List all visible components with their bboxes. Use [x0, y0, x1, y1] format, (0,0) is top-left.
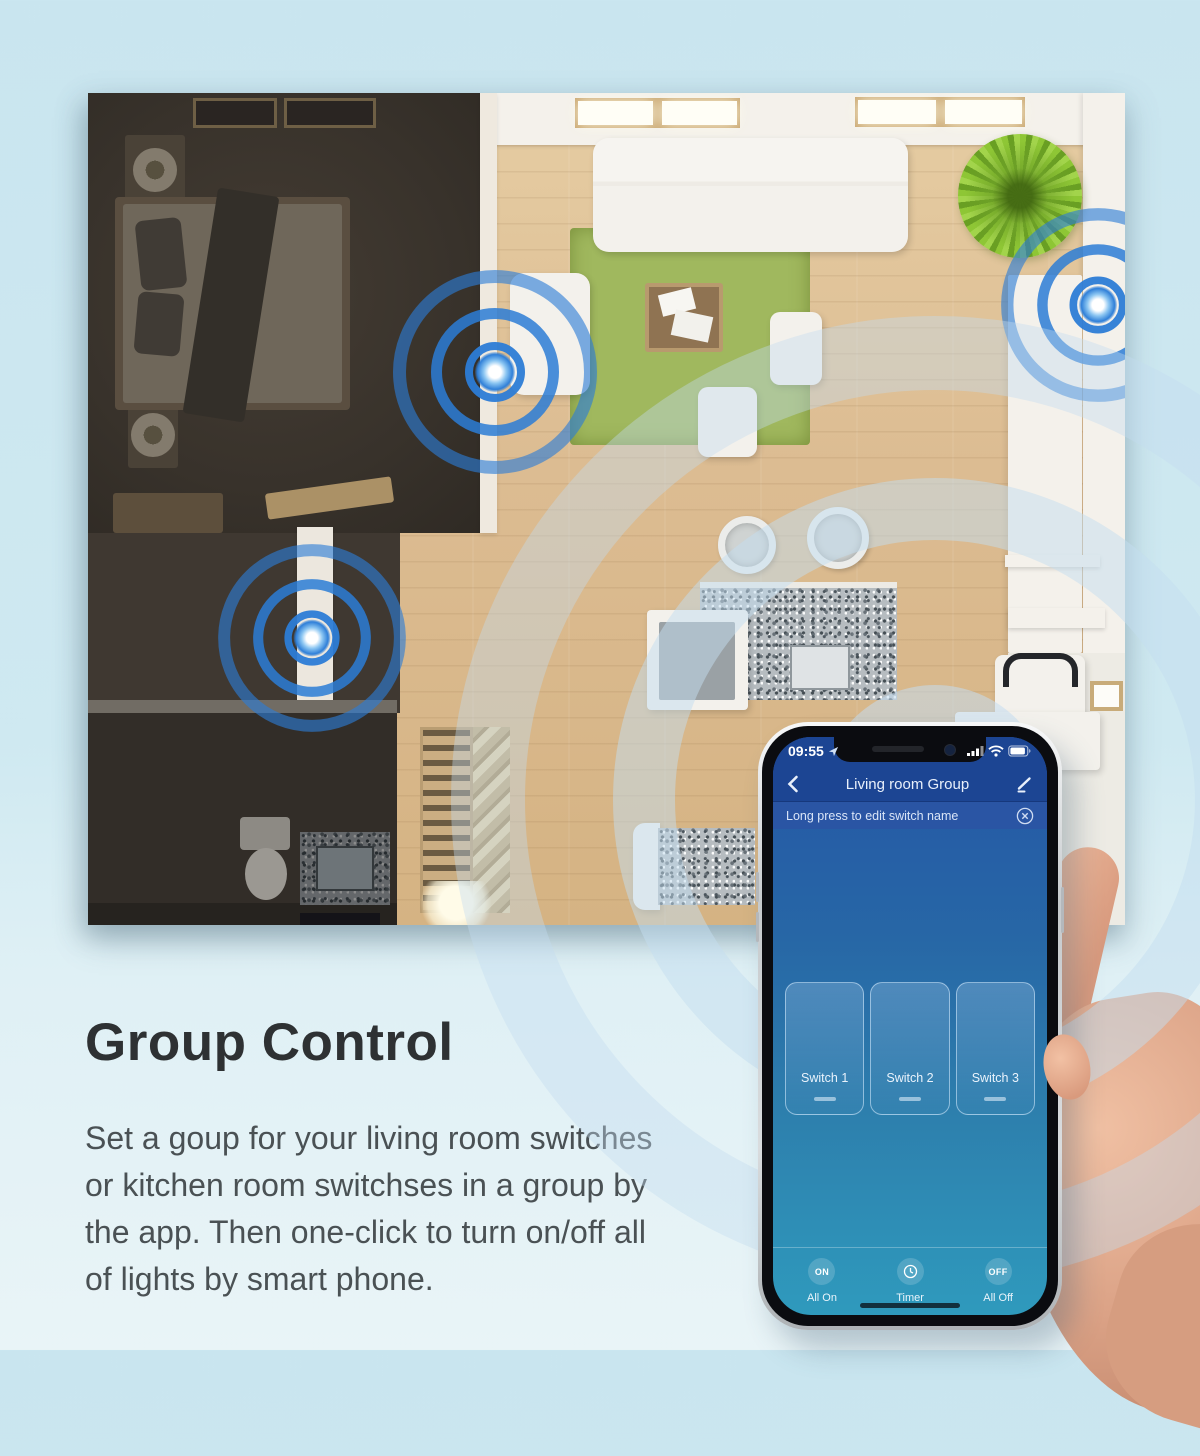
- bedroom-window: [284, 98, 376, 128]
- closet-shelf: [113, 493, 223, 533]
- switch-label: Switch 3: [957, 1071, 1034, 1085]
- volume-button: [756, 872, 759, 902]
- toilet-bowl: [245, 848, 287, 900]
- skylight-window: [855, 97, 1025, 127]
- switch-indicator: [984, 1097, 1006, 1101]
- timer-circle: [897, 1258, 924, 1285]
- power-button: [1061, 887, 1064, 933]
- body-line: the app. Then one-click to turn on/off a…: [85, 1209, 725, 1256]
- sofa: [593, 138, 908, 252]
- switch-label: Switch 2: [871, 1071, 948, 1085]
- smartphone: 09:55: [758, 722, 1062, 1330]
- all-on-button[interactable]: ON All On: [807, 1258, 837, 1315]
- switch-cards: Switch 1 Switch 2 Switch 3: [785, 982, 1035, 1115]
- wifi-icon: [988, 745, 1004, 757]
- toilet: [240, 817, 290, 850]
- body-line: of lights by smart phone.: [85, 1256, 725, 1303]
- hint-banner: Long press to edit switch name: [773, 801, 1047, 829]
- switch-card-2[interactable]: Switch 2: [870, 982, 949, 1115]
- off-circle: OFF: [985, 1258, 1012, 1285]
- timer-clock-icon: [903, 1264, 918, 1279]
- switch-indicator: [899, 1097, 921, 1101]
- back-chevron-icon[interactable]: [787, 775, 799, 793]
- bed-pillow: [133, 291, 184, 357]
- lamp: [131, 413, 175, 457]
- bedroom-window: [193, 98, 277, 128]
- all-on-label: All On: [807, 1292, 837, 1304]
- nav-bar: Living room Group: [773, 767, 1047, 801]
- lamp: [133, 148, 177, 192]
- bathroom-sink: [316, 846, 374, 891]
- bed-pillow: [134, 217, 187, 291]
- hint-text: Long press to edit switch name: [786, 809, 958, 823]
- app-screen: 09:55: [773, 737, 1047, 1315]
- switch-card-3[interactable]: Switch 3: [956, 982, 1035, 1115]
- on-circle: ON: [808, 1258, 835, 1285]
- close-circle-icon[interactable]: [1016, 807, 1034, 825]
- home-indicator[interactable]: [860, 1303, 960, 1308]
- bath-mat: [300, 913, 380, 925]
- battery-icon: [1008, 745, 1032, 757]
- cellular-signal-icon: [967, 745, 984, 757]
- all-off-label: All Off: [983, 1292, 1013, 1304]
- all-off-button[interactable]: OFF All Off: [983, 1258, 1013, 1315]
- volume-button: [756, 912, 759, 942]
- switch-card-1[interactable]: Switch 1: [785, 982, 864, 1115]
- skylight-window: [575, 98, 740, 128]
- screen-title: Living room Group: [799, 776, 1016, 793]
- location-arrow-icon: [828, 746, 839, 757]
- clock-time: 09:55: [788, 743, 824, 759]
- switch-indicator: [814, 1097, 836, 1101]
- status-bar: 09:55: [773, 743, 1047, 759]
- phone-bezel: 09:55: [762, 726, 1058, 1326]
- switch-label: Switch 1: [786, 1071, 863, 1085]
- edit-pencil-icon[interactable]: [1016, 776, 1033, 793]
